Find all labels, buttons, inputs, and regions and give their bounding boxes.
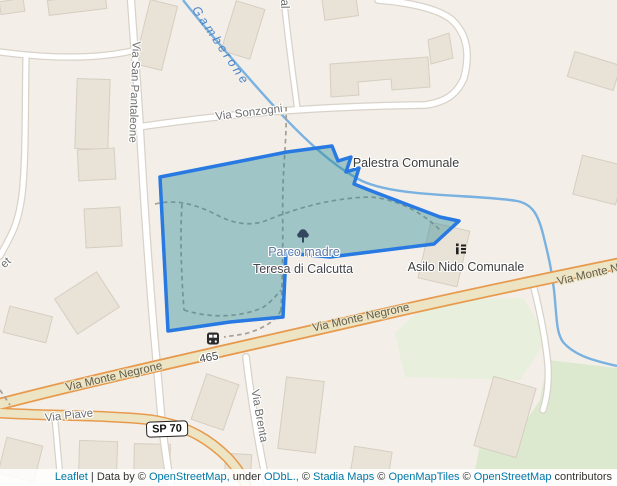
building (84, 207, 122, 248)
attribution-under: under (233, 471, 261, 483)
attribution-separator: | (91, 471, 94, 483)
leaflet-link[interactable]: Leaflet (55, 471, 88, 483)
osm-link[interactable]: OpenStreetMap, (149, 471, 230, 483)
building (278, 377, 324, 453)
building (75, 78, 110, 149)
attribution-copyright-1: © (302, 471, 310, 483)
odbl-link[interactable]: ODbL., (264, 471, 299, 483)
osm-contributors-link[interactable]: OpenStreetMap (474, 471, 552, 483)
attribution-contributors: contributors (555, 471, 612, 483)
attribution-data-by: Data by © (97, 471, 146, 483)
building (77, 148, 116, 181)
map-canvas[interactable]: Via San Pantaleone Gamberone Via Sonzogn… (0, 0, 617, 486)
stadia-maps-link[interactable]: Stadia Maps (313, 471, 374, 483)
attribution-copyright-3: © (463, 471, 471, 483)
map-tile-layer (0, 0, 617, 486)
attribution-bar: Leaflet | Data by © OpenStreetMap, under… (0, 469, 617, 486)
attribution-copyright-2: © (377, 471, 385, 483)
openmaptiles-link[interactable]: OpenMapTiles (388, 471, 459, 483)
